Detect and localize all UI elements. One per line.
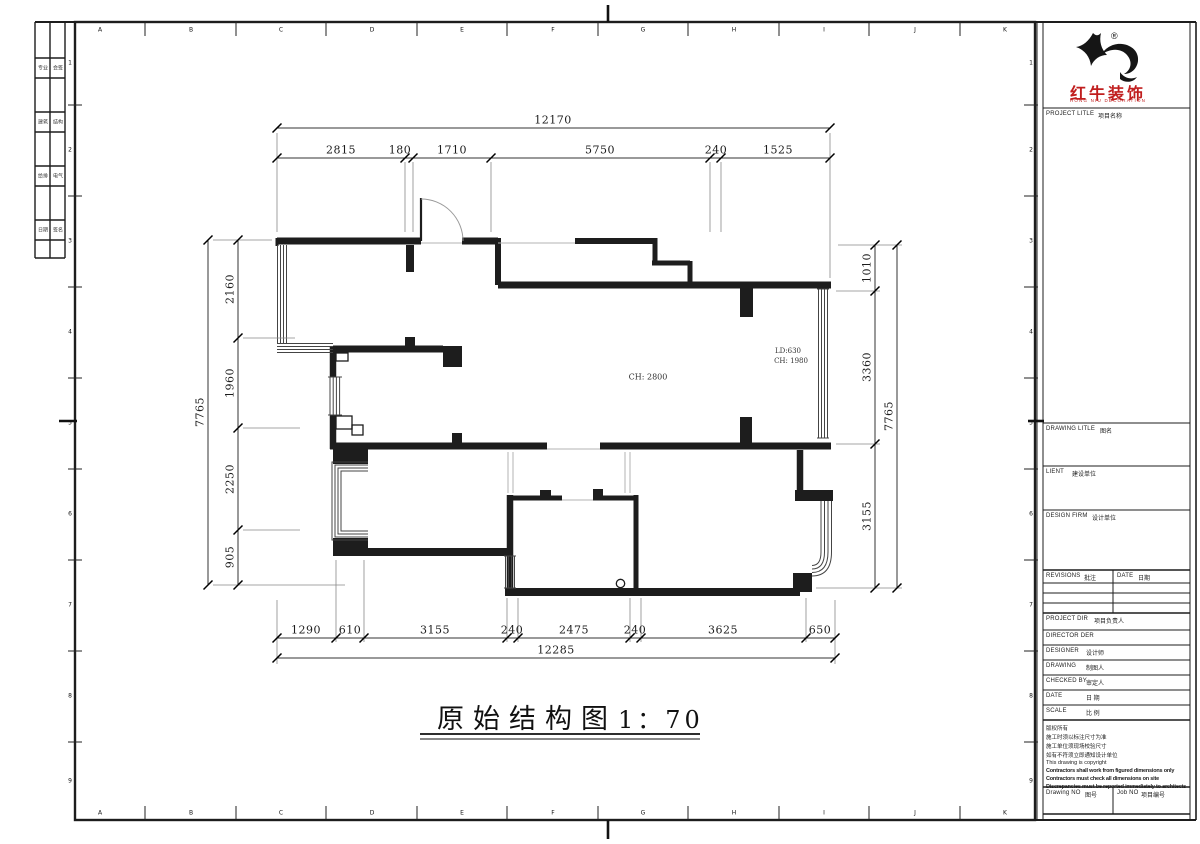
entry-door	[421, 198, 463, 241]
grid-letter-top: J	[914, 27, 916, 34]
dim-right-total: 7765	[883, 401, 896, 431]
grid-letter-top: G	[641, 27, 646, 34]
grid-number-left: 8	[68, 693, 72, 700]
grid-number-right: 8	[1029, 693, 1033, 700]
grid-number-right: 7	[1029, 602, 1033, 609]
tb-note: 施工时须以标注尺寸为准	[1046, 733, 1107, 741]
floor-drain-symbol	[616, 579, 624, 587]
strip-cell: 签名	[53, 227, 63, 234]
tb-drawing-no-cn: 图号	[1085, 790, 1097, 799]
grid-letter-bottom: G	[641, 810, 646, 817]
drawing-scale: 1：70	[618, 700, 704, 735]
strip-cell: 给排	[38, 173, 48, 180]
dim-top-seg: 1525	[763, 144, 793, 157]
drawing-title: 原始结构图	[437, 697, 617, 736]
tb-date-col-cn: 日期	[1138, 573, 1150, 582]
tb-client-en: LIENT	[1046, 469, 1064, 475]
dim-bottom-seg: 3625	[708, 624, 738, 637]
strip-cell: 电气	[53, 173, 63, 180]
dim-right-seg: 1010	[861, 253, 874, 283]
grid-letter-bottom: A	[98, 810, 102, 817]
dim-left-seg: 2160	[224, 274, 237, 304]
grid-number-right: 9	[1029, 778, 1033, 785]
grid-letter-top: D	[370, 27, 375, 34]
tb-drawing-title-cn: 图名	[1100, 426, 1112, 435]
brand-name-en: HONG NIU DECORATION	[1070, 98, 1146, 103]
strip-cell: 日期	[38, 227, 48, 234]
dim-bottom-seg: 610	[339, 624, 362, 637]
tb-date-row-en: DATE	[1046, 693, 1062, 699]
tb-date-col-en: DATE	[1117, 573, 1133, 579]
signature-strip	[35, 22, 65, 258]
strip-cell: 专业	[38, 65, 48, 72]
tb-design-firm-en: DESIGN FIRM	[1046, 513, 1088, 519]
tb-project-title-en: PROJECT LITLE	[1046, 111, 1094, 117]
grid-number-right: 6	[1029, 511, 1033, 518]
grid-number-right: 5	[1029, 420, 1033, 427]
dim-right-seg: 3155	[861, 501, 874, 531]
grid-letter-top: C	[279, 27, 283, 34]
tb-drawing-title-en: DRAWING LITLE	[1046, 426, 1095, 432]
grid-letter-top: I	[823, 27, 825, 34]
registered-mark: ®	[1111, 31, 1118, 41]
dim-top-seg: 2815	[326, 144, 356, 157]
dim-left-total: 7765	[194, 397, 207, 427]
grid-number-left: 5	[68, 420, 72, 427]
grid-letter-bottom: D	[370, 810, 375, 817]
ceiling-height-label: CH: 1980	[774, 357, 808, 365]
tb-job-no-cn: 项目编号	[1141, 790, 1165, 799]
tb-revisions-cn: 批注	[1084, 573, 1096, 582]
dim-top-seg: 5750	[585, 144, 615, 157]
dim-top-seg: 180	[389, 144, 412, 157]
grid-letter-top: E	[460, 27, 464, 34]
tb-checked-by-cn: 审定人	[1086, 678, 1104, 687]
grid-letter-bottom: J	[914, 810, 916, 817]
grid-letter-top: H	[732, 27, 737, 34]
dim-bottom-seg: 3155	[420, 624, 450, 637]
grid-number-right: 2	[1029, 147, 1033, 154]
strip-cell: 建筑	[38, 119, 48, 126]
tb-checked-by-en: CHECKED BY	[1046, 678, 1087, 684]
strip-cell: 结构	[53, 119, 63, 126]
tb-note: 如有不符须立即通知设计单位	[1046, 751, 1118, 759]
tb-designer-cn: 设计师	[1086, 648, 1104, 657]
dim-bottom-seg: 240	[501, 624, 524, 637]
tb-project-title-cn: 项目名称	[1098, 111, 1122, 120]
grid-number-left: 7	[68, 602, 72, 609]
grid-number-left: 4	[68, 329, 72, 336]
grid-letter-bottom: I	[823, 810, 825, 817]
tb-drawing-by-en: DRAWING	[1046, 663, 1076, 669]
dim-left-seg: 1960	[224, 368, 237, 398]
tb-project-dir-en: PROJECT DIR	[1046, 616, 1088, 622]
grid-letter-top: F	[551, 27, 554, 34]
tb-designer-en: DESIGNER	[1046, 648, 1079, 654]
grid-number-right: 3	[1029, 238, 1033, 245]
tb-note: 版权所有	[1046, 724, 1068, 732]
tb-revisions-en: REVISIONS	[1046, 573, 1080, 579]
grid-letter-top: A	[98, 27, 102, 34]
tb-note: This drawing is copyright	[1046, 760, 1107, 766]
grid-number-left: 9	[68, 778, 72, 785]
tb-scale-row-en: SCALE	[1046, 708, 1067, 714]
tb-note: 施工单位须现场校验尺寸	[1046, 742, 1107, 750]
tb-scale-row-cn: 比 例	[1086, 708, 1100, 717]
grid-number-left: 6	[68, 511, 72, 518]
tb-note: Contractors must check all dimensions on…	[1046, 776, 1159, 782]
lintel-label: LD:630	[775, 347, 801, 355]
grid-letter-bottom: E	[460, 810, 464, 817]
grid-letter-top: B	[189, 27, 193, 34]
dim-bottom-seg: 2475	[559, 624, 589, 637]
tb-director-en: DIRECTOR DER	[1046, 633, 1094, 639]
grid-letter-bottom: H	[732, 810, 737, 817]
dim-bottom-seg: 1290	[291, 624, 321, 637]
tb-drawing-no-en: Drawing NO	[1046, 790, 1081, 796]
bull-logo	[1076, 33, 1138, 82]
ceiling-height-label: CH: 2800	[629, 373, 668, 382]
dim-right-seg: 3360	[861, 352, 874, 382]
dim-top-seg: 240	[705, 144, 728, 157]
grid-letter-bottom: C	[279, 810, 283, 817]
dim-left-seg: 2250	[224, 464, 237, 494]
dim-top-seg: 1710	[437, 144, 467, 157]
grid-letter-bottom: F	[551, 810, 554, 817]
tb-date-row-cn: 日 期	[1086, 693, 1100, 702]
grid-letter-top: K	[1003, 27, 1007, 34]
tb-drawing-by-cn: 制图人	[1086, 663, 1104, 672]
grid-letter-bottom: K	[1003, 810, 1007, 817]
strip-cell: 会签	[53, 65, 63, 72]
grid-number-right: 1	[1029, 60, 1033, 67]
grid-number-left: 1	[68, 60, 72, 67]
dim-bottom-total: 12285	[537, 644, 575, 657]
tb-project-dir-cn: 项目负责人	[1094, 616, 1124, 625]
dim-bottom-seg: 650	[809, 624, 832, 637]
tb-job-no-en: Job NO	[1117, 790, 1139, 796]
dim-bottom-seg: 240	[624, 624, 647, 637]
dim-left-seg: 905	[224, 546, 237, 569]
drawing-sheet: A B C D E F G H I J K A B C D E F G H I …	[0, 0, 1200, 844]
tb-client-cn: 建设单位	[1072, 469, 1096, 478]
grid-number-right: 4	[1029, 329, 1033, 336]
tb-note: Contractors shall work from figured dime…	[1046, 768, 1174, 774]
grid-number-left: 3	[68, 238, 72, 245]
dim-top-total: 12170	[534, 114, 572, 127]
grid-letter-bottom: B	[189, 810, 193, 817]
tb-design-firm-cn: 设计单位	[1092, 513, 1116, 522]
grid-number-left: 2	[68, 147, 72, 154]
